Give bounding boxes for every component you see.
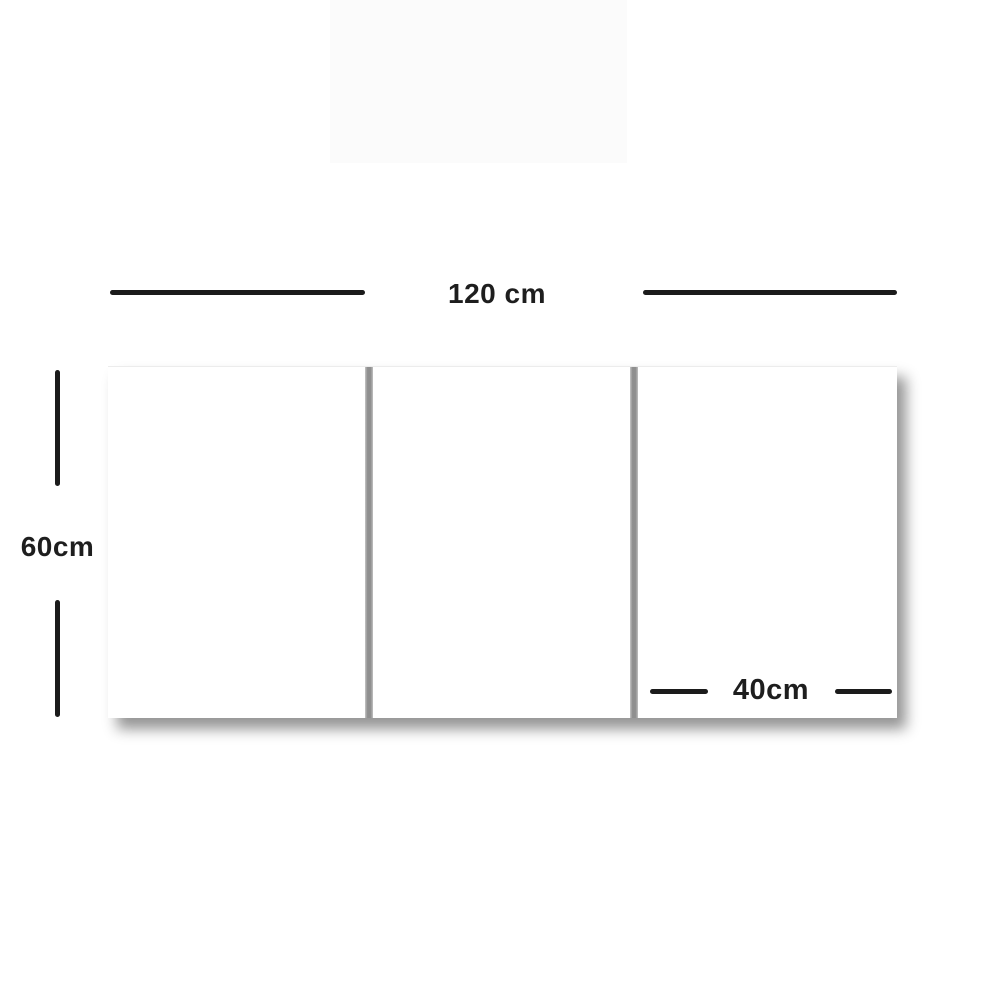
panel-gap-1: [365, 367, 373, 718]
panel-width-label: 40cm: [715, 675, 827, 705]
panel-width-dimension-tick-left: [650, 689, 708, 694]
panel-gap-2: [630, 367, 638, 718]
dimension-diagram: 120 cm 60cm 40cm: [0, 0, 1000, 1000]
total-width-dimension-line-left: [110, 290, 365, 295]
height-dimension-line-top: [55, 370, 60, 486]
total-width-label: 120 cm: [430, 279, 564, 309]
height-dimension-line-bottom: [55, 600, 60, 717]
panel-1: [108, 367, 365, 718]
total-width-dimension-line-right: [643, 290, 897, 295]
panel-2: [373, 367, 630, 718]
faint-background-block: [330, 0, 627, 163]
panel-3: [638, 367, 897, 718]
panel-width-dimension-tick-right: [835, 689, 892, 694]
height-label: 60cm: [10, 532, 105, 562]
panel-group: [108, 366, 897, 718]
